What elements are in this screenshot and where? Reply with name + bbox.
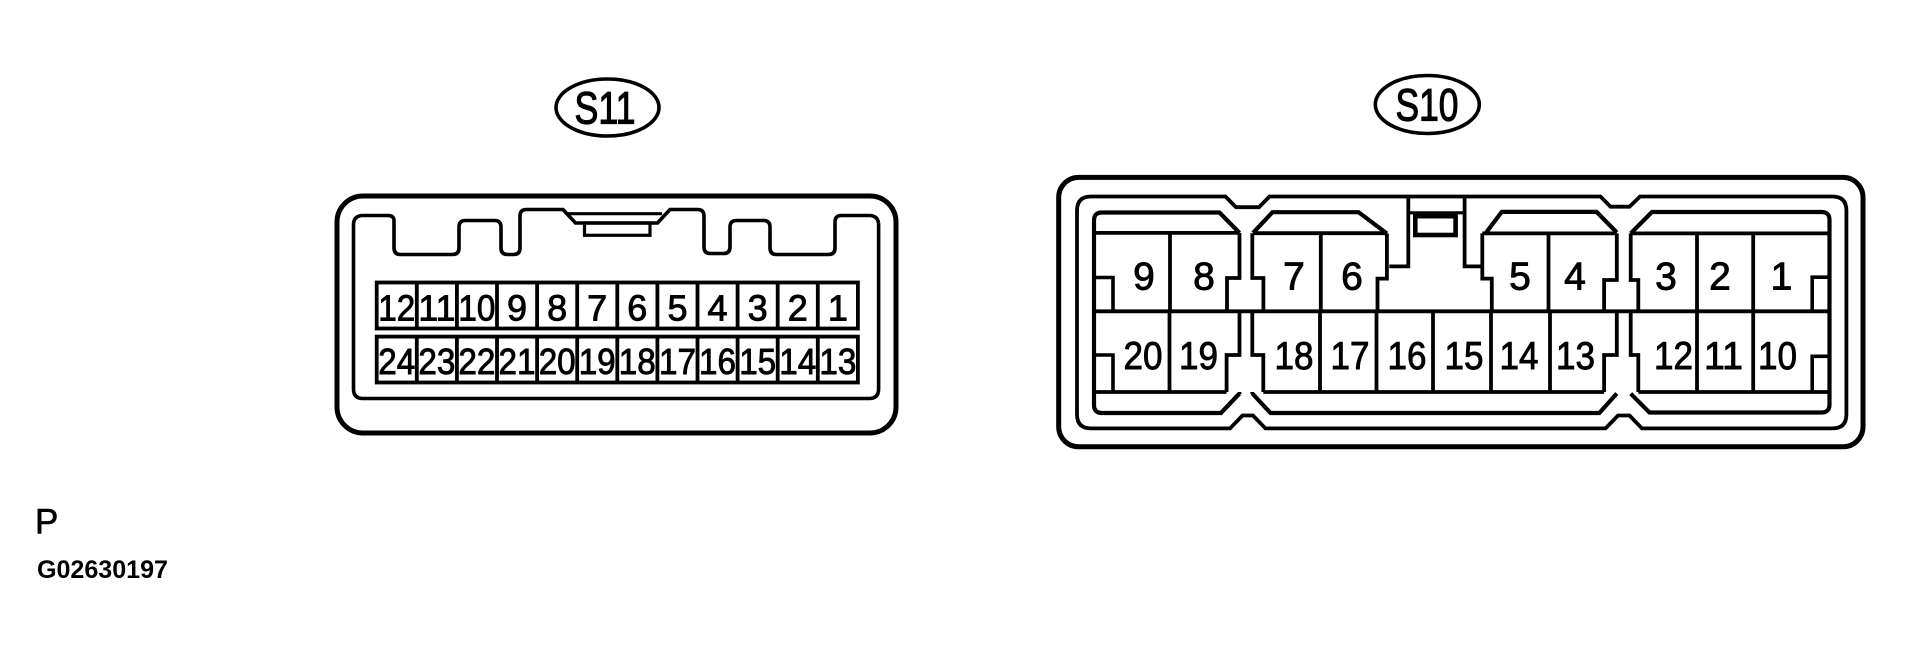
svg-text:15: 15 bbox=[739, 341, 776, 382]
svg-text:24: 24 bbox=[378, 341, 415, 382]
svg-text:4: 4 bbox=[1564, 256, 1586, 299]
svg-text:11: 11 bbox=[418, 288, 455, 329]
svg-text:3: 3 bbox=[1655, 256, 1677, 299]
svg-text:7: 7 bbox=[1283, 256, 1305, 299]
svg-text:22: 22 bbox=[458, 341, 495, 382]
svg-text:G02630197: G02630197 bbox=[37, 556, 168, 584]
svg-text:11: 11 bbox=[1704, 335, 1743, 378]
svg-text:S11: S11 bbox=[575, 83, 636, 134]
svg-text:4: 4 bbox=[707, 288, 727, 329]
svg-text:1: 1 bbox=[1771, 256, 1793, 299]
svg-text:9: 9 bbox=[1133, 256, 1155, 299]
svg-text:23: 23 bbox=[418, 341, 455, 382]
svg-text:8: 8 bbox=[1193, 256, 1215, 299]
svg-text:21: 21 bbox=[499, 341, 536, 382]
svg-text:16: 16 bbox=[699, 341, 736, 382]
svg-text:5: 5 bbox=[1509, 256, 1531, 299]
svg-text:12: 12 bbox=[1654, 335, 1693, 378]
svg-text:2: 2 bbox=[1709, 256, 1731, 299]
svg-text:1: 1 bbox=[828, 288, 848, 329]
svg-text:10: 10 bbox=[458, 288, 495, 329]
svg-text:3: 3 bbox=[748, 288, 768, 329]
svg-text:6: 6 bbox=[627, 288, 647, 329]
svg-text:15: 15 bbox=[1445, 335, 1484, 378]
svg-text:14: 14 bbox=[779, 341, 816, 382]
svg-text:2: 2 bbox=[788, 288, 808, 329]
svg-text:17: 17 bbox=[1331, 335, 1370, 378]
svg-text:20: 20 bbox=[539, 341, 576, 382]
svg-text:9: 9 bbox=[507, 288, 527, 329]
svg-text:14: 14 bbox=[1500, 335, 1539, 378]
svg-text:13: 13 bbox=[1556, 335, 1595, 378]
svg-text:10: 10 bbox=[1758, 335, 1797, 378]
svg-text:8: 8 bbox=[547, 288, 567, 329]
svg-text:17: 17 bbox=[659, 341, 696, 382]
svg-text:5: 5 bbox=[667, 288, 687, 329]
svg-text:6: 6 bbox=[1341, 256, 1363, 299]
svg-text:P: P bbox=[35, 503, 58, 542]
svg-text:12: 12 bbox=[378, 288, 415, 329]
svg-text:20: 20 bbox=[1124, 335, 1163, 378]
svg-text:18: 18 bbox=[1275, 335, 1314, 378]
svg-text:19: 19 bbox=[1179, 335, 1218, 378]
svg-text:16: 16 bbox=[1388, 335, 1427, 378]
svg-text:13: 13 bbox=[819, 341, 856, 382]
svg-text:18: 18 bbox=[619, 341, 656, 382]
svg-text:S10: S10 bbox=[1396, 80, 1459, 131]
svg-text:19: 19 bbox=[579, 341, 616, 382]
svg-text:7: 7 bbox=[587, 288, 607, 329]
